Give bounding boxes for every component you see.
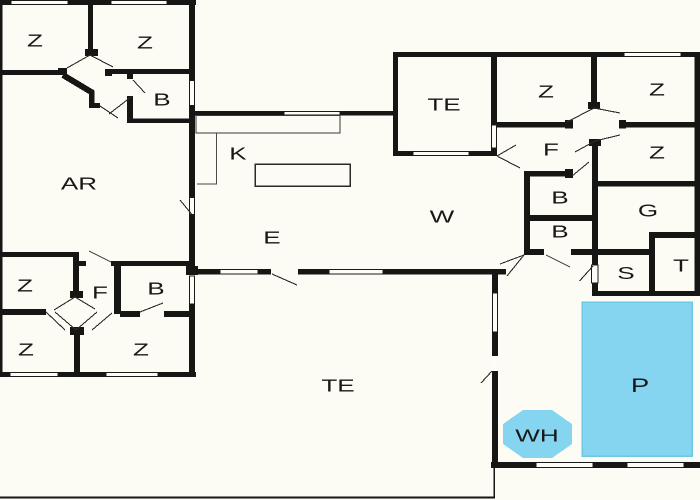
- svg-text:B: B: [551, 221, 568, 241]
- svg-text:Z: Z: [538, 81, 554, 101]
- svg-text:TE: TE: [427, 94, 460, 114]
- svg-text:AR: AR: [61, 173, 97, 193]
- svg-text:Z: Z: [649, 79, 665, 99]
- svg-text:E: E: [263, 227, 280, 247]
- svg-text:TE: TE: [321, 375, 354, 395]
- svg-text:S: S: [617, 263, 634, 283]
- svg-text:T: T: [673, 255, 689, 275]
- svg-text:B: B: [153, 89, 170, 109]
- svg-text:Z: Z: [133, 339, 149, 359]
- svg-text:F: F: [92, 282, 108, 302]
- svg-text:K: K: [229, 143, 246, 163]
- svg-text:W: W: [430, 206, 456, 226]
- svg-text:B: B: [551, 187, 568, 207]
- svg-text:Z: Z: [137, 32, 153, 52]
- svg-text:Z: Z: [27, 30, 43, 50]
- svg-text:P: P: [631, 376, 649, 397]
- svg-text:B: B: [147, 278, 164, 298]
- svg-text:G: G: [638, 200, 658, 220]
- svg-text:Z: Z: [18, 339, 34, 359]
- svg-text:Z: Z: [649, 142, 665, 162]
- svg-text:F: F: [543, 139, 559, 159]
- svg-text:WH: WH: [515, 425, 558, 445]
- svg-text:Z: Z: [17, 275, 33, 295]
